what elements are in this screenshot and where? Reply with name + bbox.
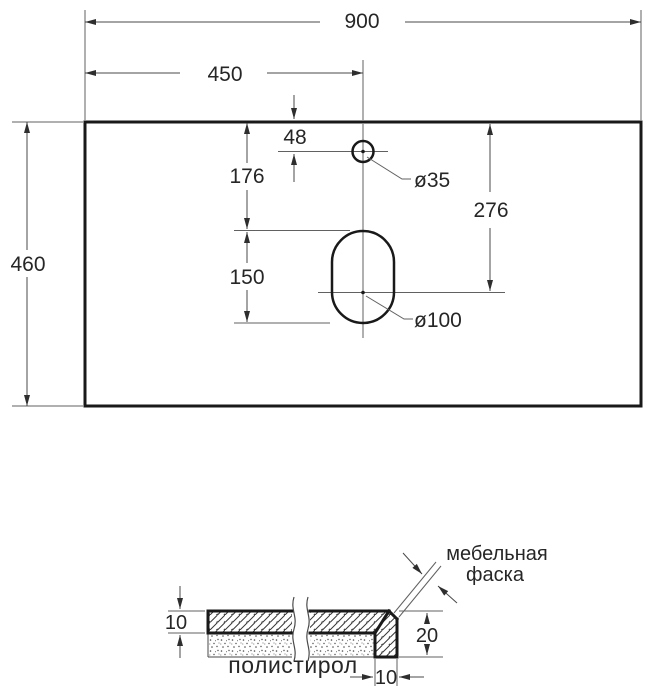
drain-center-dot — [361, 291, 365, 295]
chamfer-label-line1: мебельная — [446, 543, 547, 565]
dim-label-drain-diameter: ø100 — [414, 309, 462, 332]
faucet-hole: ø35 — [353, 141, 451, 192]
dim-drain-from-back: 276 — [473, 124, 508, 291]
dim-overall-width: 900 — [85, 10, 641, 33]
chamfer-extension-line — [394, 562, 436, 613]
dim-label-overall-width: 900 — [344, 10, 379, 33]
section-view: 10 20 10 мебельная фаска поли — [165, 543, 548, 688]
filler-label: полистирол — [228, 652, 357, 678]
technical-drawing: 900 450 460 48 176 1 — [0, 0, 650, 688]
dim-label-faucet-from-left: 450 — [207, 63, 242, 86]
dim-slot-length: 150 — [229, 232, 264, 322]
dim-edge-width: 10 — [350, 659, 424, 688]
dim-edge-height: 20 — [399, 611, 443, 657]
dim-top-thickness: 10 — [165, 586, 205, 658]
faucet-hole-center-dot — [361, 150, 365, 154]
dim-slot-offset: 176 — [229, 123, 264, 229]
dim-label-top-thickness: 10 — [165, 612, 187, 634]
dim-label-faucet-offset: 48 — [283, 126, 306, 149]
chamfer-arrow — [403, 553, 422, 574]
chamfer-arrow — [438, 586, 457, 603]
dim-label-slot-offset: 176 — [229, 165, 264, 188]
drawing-page: 900 450 460 48 176 1 — [0, 0, 650, 688]
chamfer-label-line2: фаска — [466, 564, 525, 586]
dim-overall-depth: 460 — [10, 122, 45, 406]
dim-label-edge-height: 20 — [416, 625, 438, 647]
chamfer-extension-line — [399, 566, 441, 617]
dim-label-drain-from-back: 276 — [473, 199, 508, 222]
faucet-leader-line — [367, 157, 411, 179]
drain-slot: ø100 — [332, 231, 462, 332]
extension-lines — [12, 10, 641, 406]
dim-label-edge-width: 10 — [375, 667, 397, 688]
dim-label-overall-depth: 460 — [10, 253, 45, 276]
dim-faucet-offset: 48 — [283, 95, 306, 182]
dim-faucet-from-left: 450 — [85, 63, 363, 86]
dim-label-slot-length: 150 — [229, 266, 264, 289]
top-view: 900 450 460 48 176 1 — [10, 10, 641, 406]
slab-hatch-left — [208, 611, 292, 633]
chamfer-callout: мебельная фаска — [394, 543, 548, 617]
dim-label-faucet-diameter: ø35 — [414, 169, 450, 192]
